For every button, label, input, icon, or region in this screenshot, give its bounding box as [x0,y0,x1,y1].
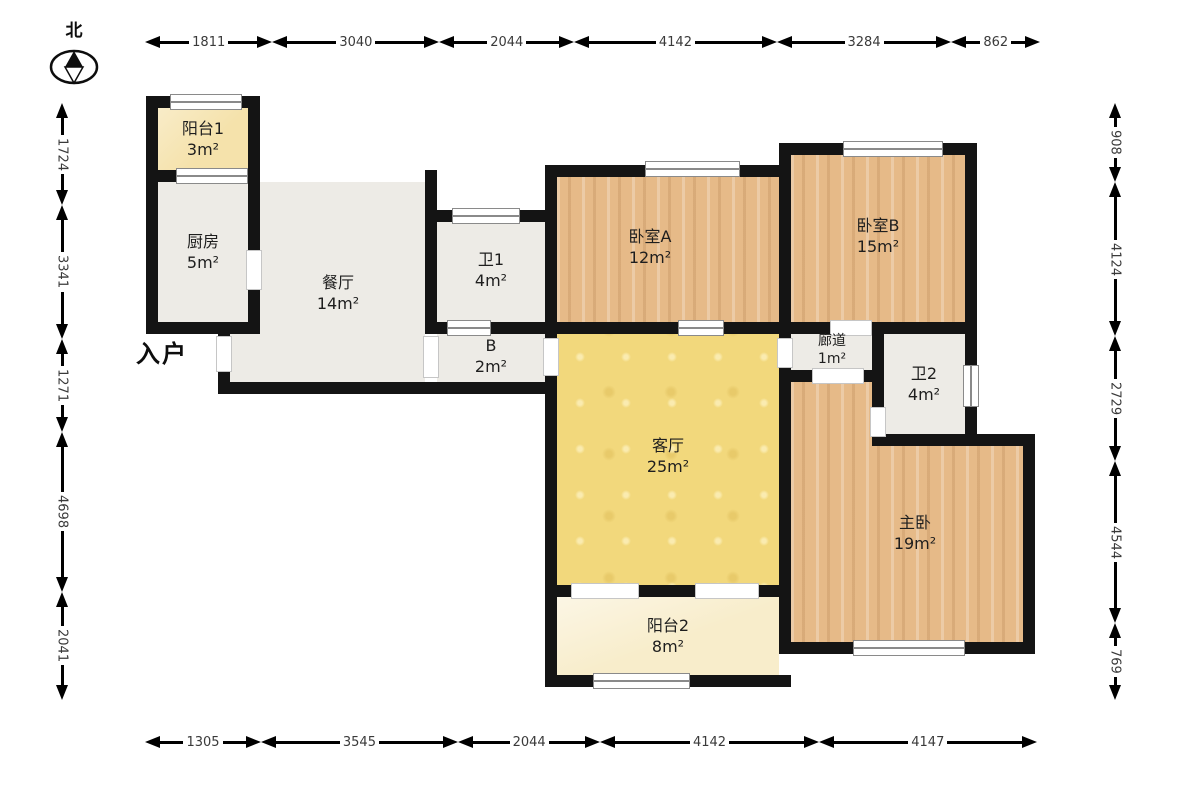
wall [218,382,557,394]
dim-segment: 3545 [261,735,458,750]
window [593,673,690,689]
dim-arrow [1109,182,1121,197]
dim-segment: 4147 [819,735,1037,750]
dim-segment: 1271 [55,339,70,433]
dim-line [61,174,64,191]
room-name-kitchen: 厨房 [187,231,219,252]
wall [425,322,557,334]
dim-line [61,607,64,627]
dim-line [473,741,510,744]
room-area-master: 19m² [894,533,936,554]
dim-segment: 2041 [55,592,70,700]
dim-arrow [56,205,68,220]
dim-line [61,531,64,576]
dim-line [61,118,64,135]
dim-line [884,41,937,44]
room-name-corridor: 廊道 [818,332,846,350]
room-name-bath1: 卫1 [475,249,507,270]
wall [425,170,437,334]
dim-line [589,41,656,44]
dim-arrow [458,736,473,748]
room-name-balcony2: 阳台2 [647,615,689,636]
wall [248,96,260,334]
room-area-kitchen: 5m² [187,252,219,273]
entry-label: 入户 [136,334,188,369]
dim-arrow [1109,623,1121,638]
wall [146,96,158,334]
dim-line [947,741,1022,744]
dim-line [729,741,804,744]
room-area-bath2: 4m² [908,384,940,405]
dim-label: 2729 [1108,382,1123,415]
dim-line [223,741,246,744]
dim-line [1114,279,1117,321]
room-area-bedroom-b: 15m² [857,236,900,257]
room-name-bath2: 卫2 [908,363,940,384]
dim-segment: 1724 [55,103,70,205]
dim-line [287,41,336,44]
dim-arrow [559,36,574,48]
dim-line [1114,158,1117,167]
dim-arrow [1025,36,1040,48]
room-label-master: 主卧19m² [894,512,936,554]
dim-line [276,741,340,744]
window [678,320,724,336]
door-opening [423,336,439,378]
dim-label: 4124 [1108,243,1123,276]
dim-label: 3040 [339,35,372,50]
dim-arrow [762,36,777,48]
door-opening [571,583,639,599]
dim-line [454,41,487,44]
dim-line [1114,476,1117,523]
wall [779,322,791,654]
room-area-bedroom-a: 12m² [629,247,672,268]
dim-arrow [56,432,68,447]
dim-arrow [1109,336,1121,351]
dim-line [1114,351,1117,379]
room-area-bath1: 4m² [475,270,507,291]
dim-line [61,447,64,492]
dim-arrow [439,36,454,48]
room-name-master: 主卧 [894,512,936,533]
dim-line [160,741,183,744]
dim-arrow [56,339,68,354]
room-name-dining: 餐厅 [317,272,359,293]
room-label-bedroom-a: 卧室A12m² [629,226,672,268]
dim-arrow [1022,736,1037,748]
dim-line [379,741,443,744]
room-area-living: 25m² [647,456,689,477]
dim-segment: 4698 [55,432,70,591]
dim-line [1114,638,1117,646]
dim-line [61,292,64,324]
dim-arrow [56,103,68,118]
dim-line [549,741,586,744]
dim-arrow [585,736,600,748]
dim-arrow [246,736,261,748]
wall [146,322,260,334]
wall [779,322,977,334]
dim-arrow [145,736,160,748]
dim-arrow [1109,446,1121,461]
dim-label: 1271 [55,369,70,402]
dim-arrow [56,592,68,607]
dim-line [966,41,980,44]
dim-label: 2044 [513,735,546,750]
dim-segment: 908 [1108,103,1123,182]
door-opening [246,250,262,290]
room-label-balcony2: 阳台28m² [647,615,689,657]
dim-arrow [819,736,834,748]
room-label-balcony1: 阳台13m² [182,118,224,160]
dim-line [1114,418,1117,446]
dim-segment: 2044 [439,35,574,50]
window [843,141,943,157]
dim-arrow [257,36,272,48]
dim-segment: 2729 [1108,336,1123,461]
dim-line [1114,562,1117,609]
dim-label: 908 [1108,130,1123,155]
dim-label: 2044 [490,35,523,50]
dim-arrow [1109,167,1121,182]
room-dining [230,334,260,382]
window [170,94,242,110]
dim-segment: 1811 [145,35,272,50]
wall [545,322,791,334]
dim-arrow [56,324,68,339]
window [452,208,520,224]
dim-line [615,741,690,744]
north-label: 北 [66,21,83,41]
dim-arrow [272,36,287,48]
dim-segment: 4124 [1108,182,1123,336]
dim-arrow [56,417,68,432]
door-opening [870,407,886,437]
room-name-passage-b: B [475,335,507,356]
door-opening [543,338,559,376]
dim-arrow [936,36,951,48]
dim-label: 3284 [848,35,881,50]
room-label-corridor: 廊道1m² [818,332,846,368]
dim-arrow [1109,103,1121,118]
window [645,161,740,177]
dim-segment: 2044 [458,735,601,750]
room-label-bedroom-b: 卧室B15m² [857,215,900,257]
dim-arrow [1109,608,1121,623]
dim-line [792,41,845,44]
room-label-dining: 餐厅14m² [317,272,359,314]
dim-line [61,220,64,252]
dim-segment: 3341 [55,205,70,338]
dim-right: 908412427294544769 [1105,103,1125,700]
dim-left: 17243341127146982041 [52,103,72,700]
door-opening [812,368,864,384]
dim-arrow [1109,461,1121,476]
dim-segment: 4142 [574,35,776,50]
dim-bottom: 13053545204441424147 [145,732,1037,752]
room-label-passage-b: B2m² [475,335,507,377]
room-label-kitchen: 厨房5m² [187,231,219,273]
dim-label: 2041 [55,629,70,662]
room-label-living: 客厅25m² [647,435,689,477]
room-area-dining: 14m² [317,293,359,314]
dim-arrow [804,736,819,748]
north-compass-icon: 北 [44,20,104,90]
dim-label: 1305 [186,735,219,750]
room-area-balcony2: 8m² [647,636,689,657]
room-name-living: 客厅 [647,435,689,456]
window [176,168,248,184]
dim-segment: 4142 [600,735,818,750]
dim-line [526,41,559,44]
dim-label: 769 [1108,649,1123,674]
dim-line [160,41,189,44]
dim-line [61,665,64,685]
wall [545,165,557,687]
window [447,320,491,336]
dim-segment: 3040 [272,35,439,50]
dim-arrow [1109,685,1121,700]
dim-line [228,41,257,44]
dim-label: 3341 [55,255,70,288]
dim-arrow [145,36,160,48]
dim-arrow [56,577,68,592]
dim-label: 1724 [55,138,70,171]
dim-arrow [600,736,615,748]
dim-label: 4142 [659,35,692,50]
dim-line [1114,118,1117,127]
window [853,640,965,656]
window [963,365,979,407]
room-area-passage-b: 2m² [475,356,507,377]
door-opening [695,583,759,599]
room-name-bedroom-a: 卧室A [629,226,672,247]
dim-arrow [1109,321,1121,336]
dim-label: 4147 [911,735,944,750]
dim-line [1011,41,1025,44]
dim-segment: 3284 [777,35,952,50]
dim-line [1114,677,1117,685]
wall [872,434,1035,446]
door-opening [777,338,793,368]
room-label-bath2: 卫24m² [908,363,940,405]
dim-segment: 4544 [1108,461,1123,623]
wall [1023,434,1035,654]
room-area-corridor: 1m² [818,350,846,368]
dim-segment: 769 [1108,623,1123,700]
wall [779,143,791,334]
dim-line [834,741,909,744]
dim-label: 3545 [343,735,376,750]
dim-label: 1811 [192,35,225,50]
dim-segment: 862 [951,35,1040,50]
room-label-bath1: 卫14m² [475,249,507,291]
dim-arrow [261,736,276,748]
dim-arrow [951,36,966,48]
dim-segment: 1305 [145,735,261,750]
dim-line [375,41,424,44]
dim-arrow [424,36,439,48]
dim-top: 18113040204441423284862 [145,32,1040,52]
dim-arrow [56,685,68,700]
floor-plan-canvas: 北 阳台13m²厨房5m²餐厅14m²卫14m²B2m²卧室A12m²卧室B15… [0,0,1177,785]
dim-line [695,41,762,44]
dim-label: 862 [983,35,1008,50]
room-area-balcony1: 3m² [182,139,224,160]
dim-line [61,354,64,366]
door-opening [216,336,232,372]
dim-arrow [56,190,68,205]
room-name-bedroom-b: 卧室B [857,215,900,236]
dim-label: 4142 [693,735,726,750]
dim-label: 4698 [55,495,70,528]
dim-arrow [574,36,589,48]
dim-arrow [777,36,792,48]
dim-line [61,405,64,417]
dim-arrow [443,736,458,748]
room-name-balcony1: 阳台1 [182,118,224,139]
dim-line [1114,197,1117,239]
dim-label: 4544 [1108,526,1123,559]
